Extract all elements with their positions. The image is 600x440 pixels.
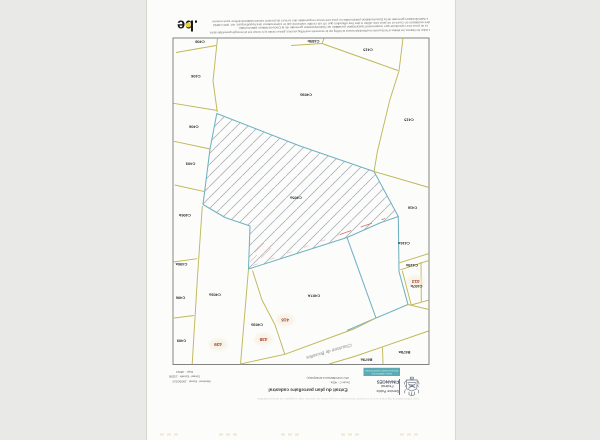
svg-text:C409: C409 [176,338,186,343]
svg-text:Federal: Federal [381,384,393,388]
svg-text:C416a: C416a [397,241,410,246]
svg-text:C406b: C406b [178,213,191,218]
svg-text:FINANCES: FINANCES [377,380,400,385]
svg-text:Uittreksel - Extrait : 19/09/2: Uittreksel - Extrait : 19/09/2013 [172,379,211,383]
svg-text:C407A: C407A [308,294,321,299]
svg-text:413: 413 [412,279,420,284]
svg-text:Chaussee de Bruxelles: Chaussee de Bruxelles [305,343,352,361]
svg-text:416: 416 [281,318,289,323]
svg-text:C403a: C403a [208,293,221,298]
svg-text:C403: C403 [185,162,195,167]
svg-text:ATH 4 DIV/MESLIN-L'EVEQUE(1): ATH 4 DIV/MESLIN-L'EVEQUE(1) [306,376,349,380]
svg-text:C415: C415 [362,48,372,53]
svg-text:C406: C406 [190,74,200,79]
svg-text:C409b: C409b [299,93,312,98]
svg-text:Service Public: Service Public [376,389,399,393]
svg-text:documentation patrimoniale: documentation patrimoniale [365,369,399,373]
svg-text:C416: C416 [407,206,417,211]
svg-text:Les informations figurant sur: Les informations figurant sur le present… [257,397,419,401]
svg-text:438: 438 [259,337,267,342]
svg-text:C403b: C403b [250,323,263,328]
svg-text:B678a: B678a [398,350,411,355]
svg-text:C415b: C415b [405,263,418,268]
svg-text:C405a: C405a [289,196,302,201]
svg-text:Extrait du plan parcellaire ca: Extrait du plan parcellaire cadastral [268,388,347,393]
svg-text:B679a: B679a [360,358,373,363]
svg-text:C408: C408 [194,40,204,45]
svg-text:Dept. : 48013: Dept. : 48013 [176,370,193,374]
svg-text:C406: C406 [188,125,198,130]
svg-text:C406a: C406a [175,262,188,267]
svg-text:Schaal - Echelle : 1/2500: Schaal - Echelle : 1/2500 [168,375,200,379]
svg-text:Sectie C - 405a: Sectie C - 405a [330,381,350,385]
svg-text:C485b: C485b [307,39,320,44]
svg-text:C415: C415 [403,118,413,123]
svg-text:C406: C406 [175,295,185,300]
svg-text:439: 439 [214,342,222,347]
